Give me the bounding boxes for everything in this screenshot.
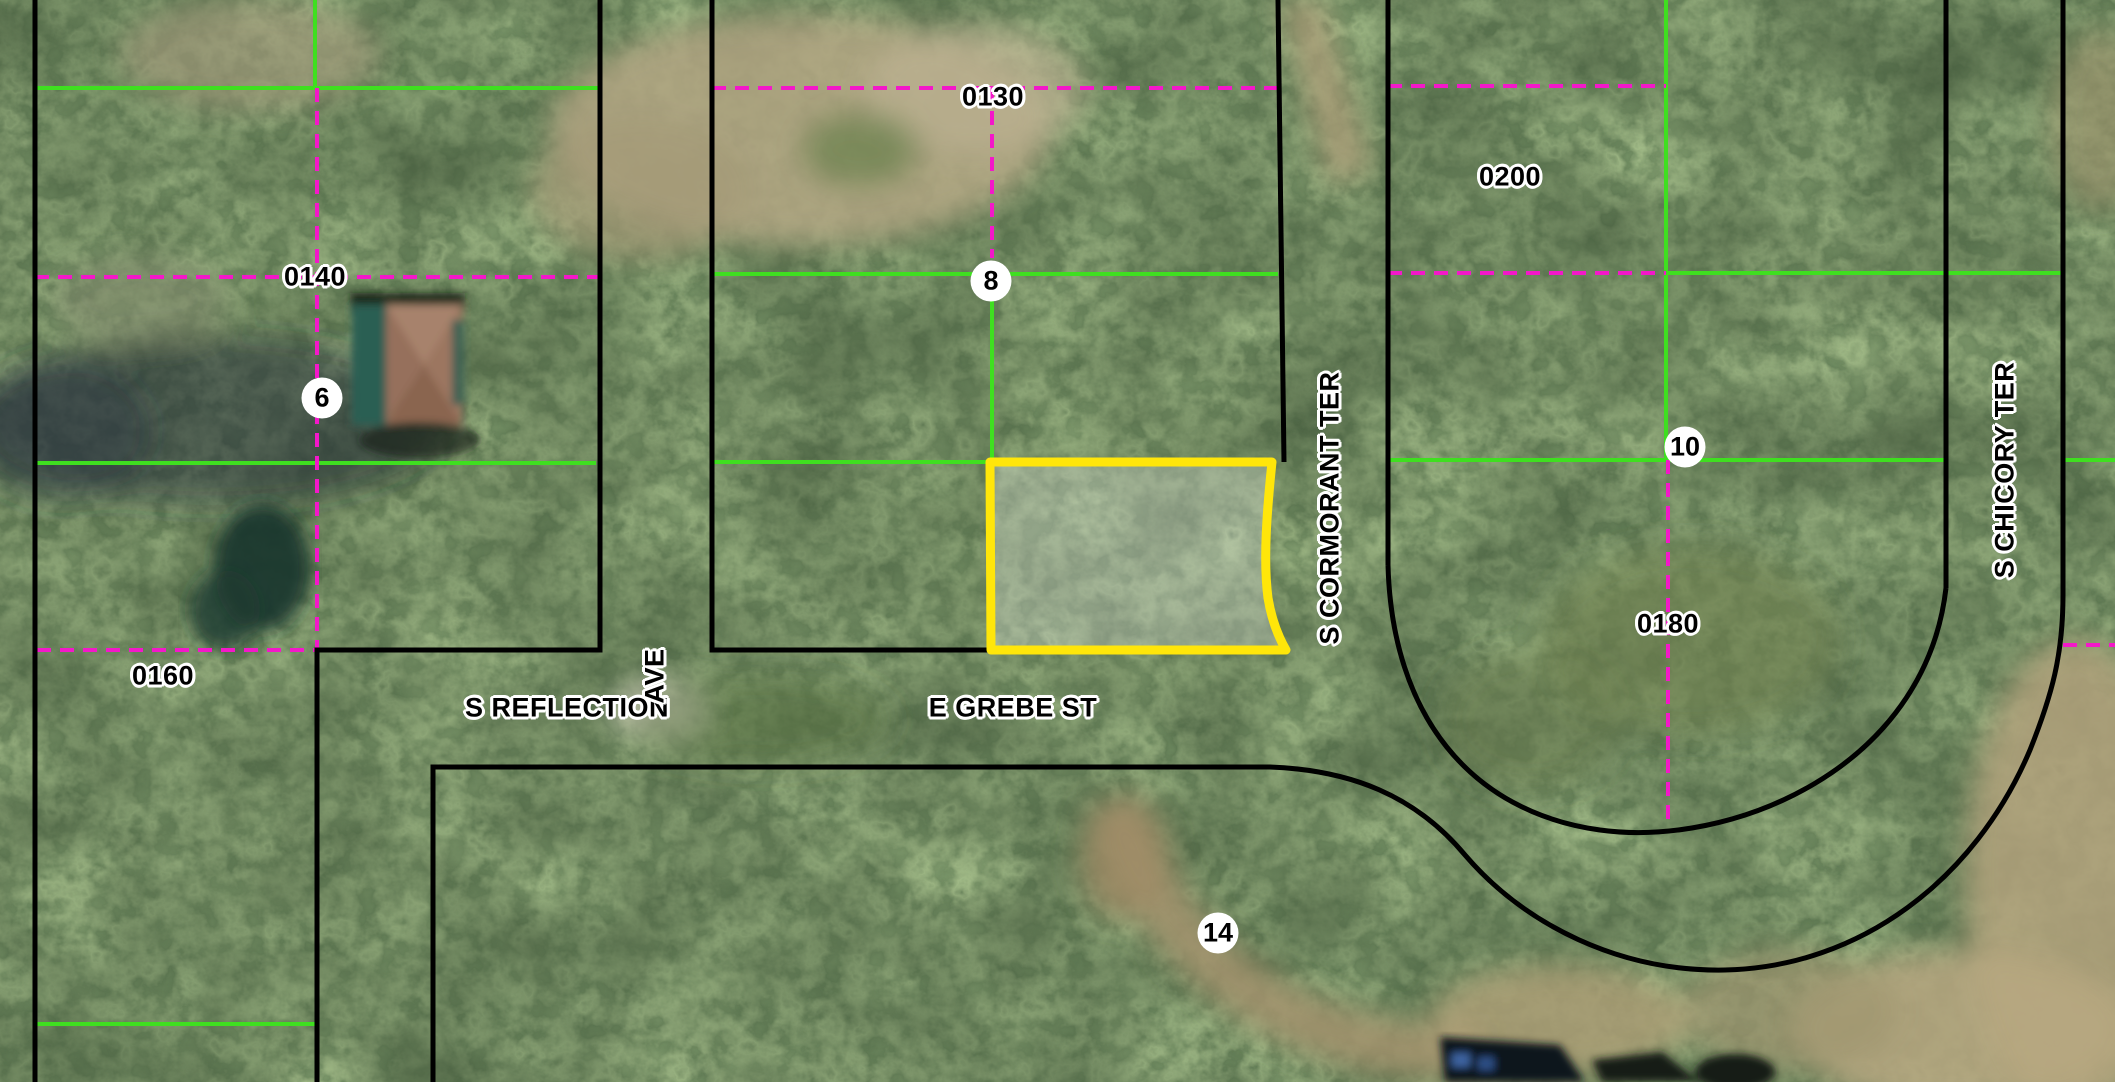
map-graphics: [0, 0, 2115, 1082]
parcel-number-label: 0200: [1479, 164, 1541, 191]
lot-number-circle: 10: [1665, 427, 1706, 468]
street-name-ave: AVE: [642, 648, 669, 703]
street-name-s-reflection: S REFLECTION: [465, 695, 669, 722]
street-name-s-chicory-ter: S CHICORY TER: [1992, 362, 2019, 579]
lot-number: 8: [983, 266, 998, 297]
parcel-number-label: 0160: [132, 663, 194, 690]
lot-number-circle: 6: [302, 378, 343, 419]
house: [350, 293, 480, 458]
parcel-number-label: 0130: [962, 84, 1024, 111]
street-name-e-grebe-st: E GREBE ST: [929, 695, 1098, 722]
lot-number: 6: [314, 383, 329, 414]
lot-number: 14: [1203, 918, 1233, 949]
parcel-number-label: 0180: [1637, 611, 1699, 638]
lot-number-circle: 14: [1198, 913, 1239, 954]
aerial-parcel-map[interactable]: 0140 0130 0160 0200 0180 6 8 10 14 S REF…: [0, 0, 2115, 1082]
highlighted-parcel[interactable]: [990, 462, 1286, 650]
parcel-number-label: 0140: [284, 264, 346, 291]
lot-number: 10: [1670, 432, 1700, 463]
street-name-s-cormorant-ter: S CORMORANT TER: [1317, 372, 1344, 645]
lot-number-circle: 8: [971, 261, 1012, 302]
